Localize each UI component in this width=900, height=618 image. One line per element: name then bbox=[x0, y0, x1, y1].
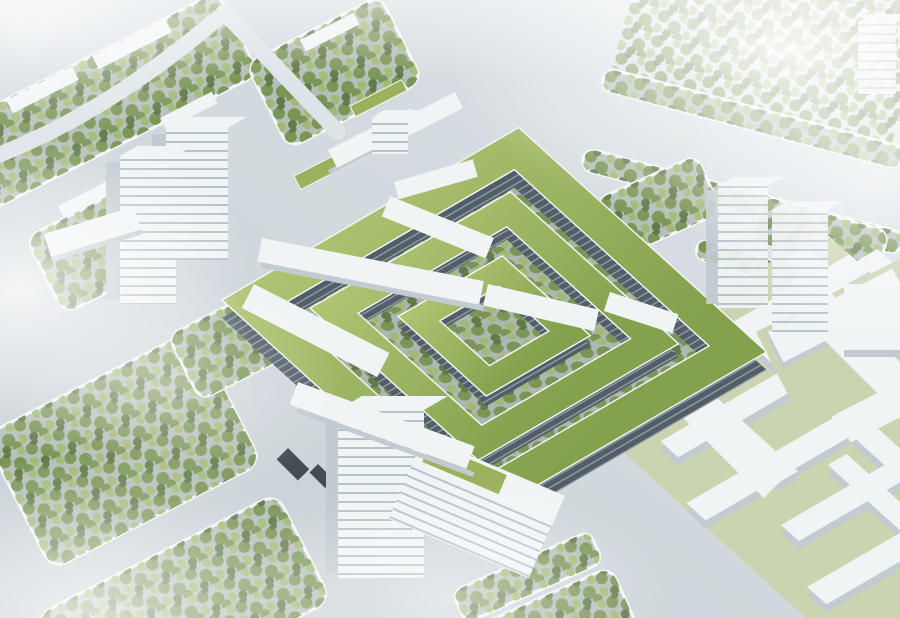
global-haze bbox=[0, 0, 900, 618]
architectural-rendering: Aerial axonometric architectural renderi… bbox=[0, 0, 900, 618]
fog-haze bbox=[0, 0, 900, 618]
rendering-canvas: Aerial axonometric architectural renderi… bbox=[0, 0, 900, 618]
